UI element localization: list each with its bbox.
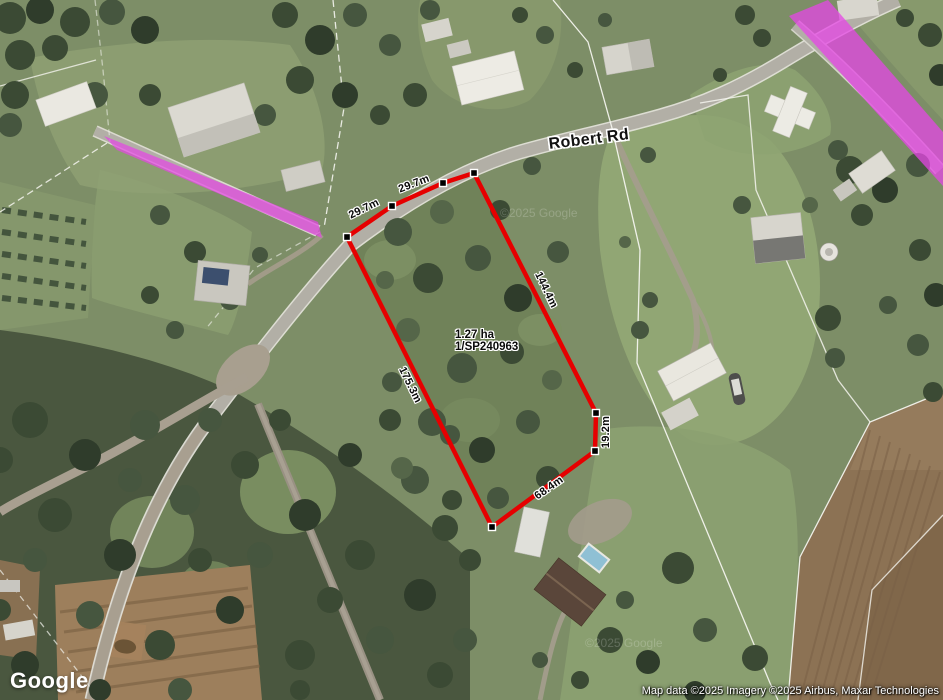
orchard-rows: [0, 182, 95, 330]
map-canvas[interactable]: ©2025 Google ©2025 Google 29.7m 29.7m 14…: [0, 0, 943, 700]
google-logo[interactable]: Google: [10, 668, 89, 694]
measurement-label-east-lower: 19.2m: [600, 416, 612, 448]
parcel-lot-plan-label: 1/SP240963: [455, 341, 518, 353]
parcel-area-block: 1.27 ha 1/SP240963: [455, 329, 518, 353]
parcel-area-label: 1.27 ha: [455, 329, 518, 341]
map-attribution: Map data ©2025 Imagery ©2025 Airbus, Max…: [642, 685, 939, 697]
